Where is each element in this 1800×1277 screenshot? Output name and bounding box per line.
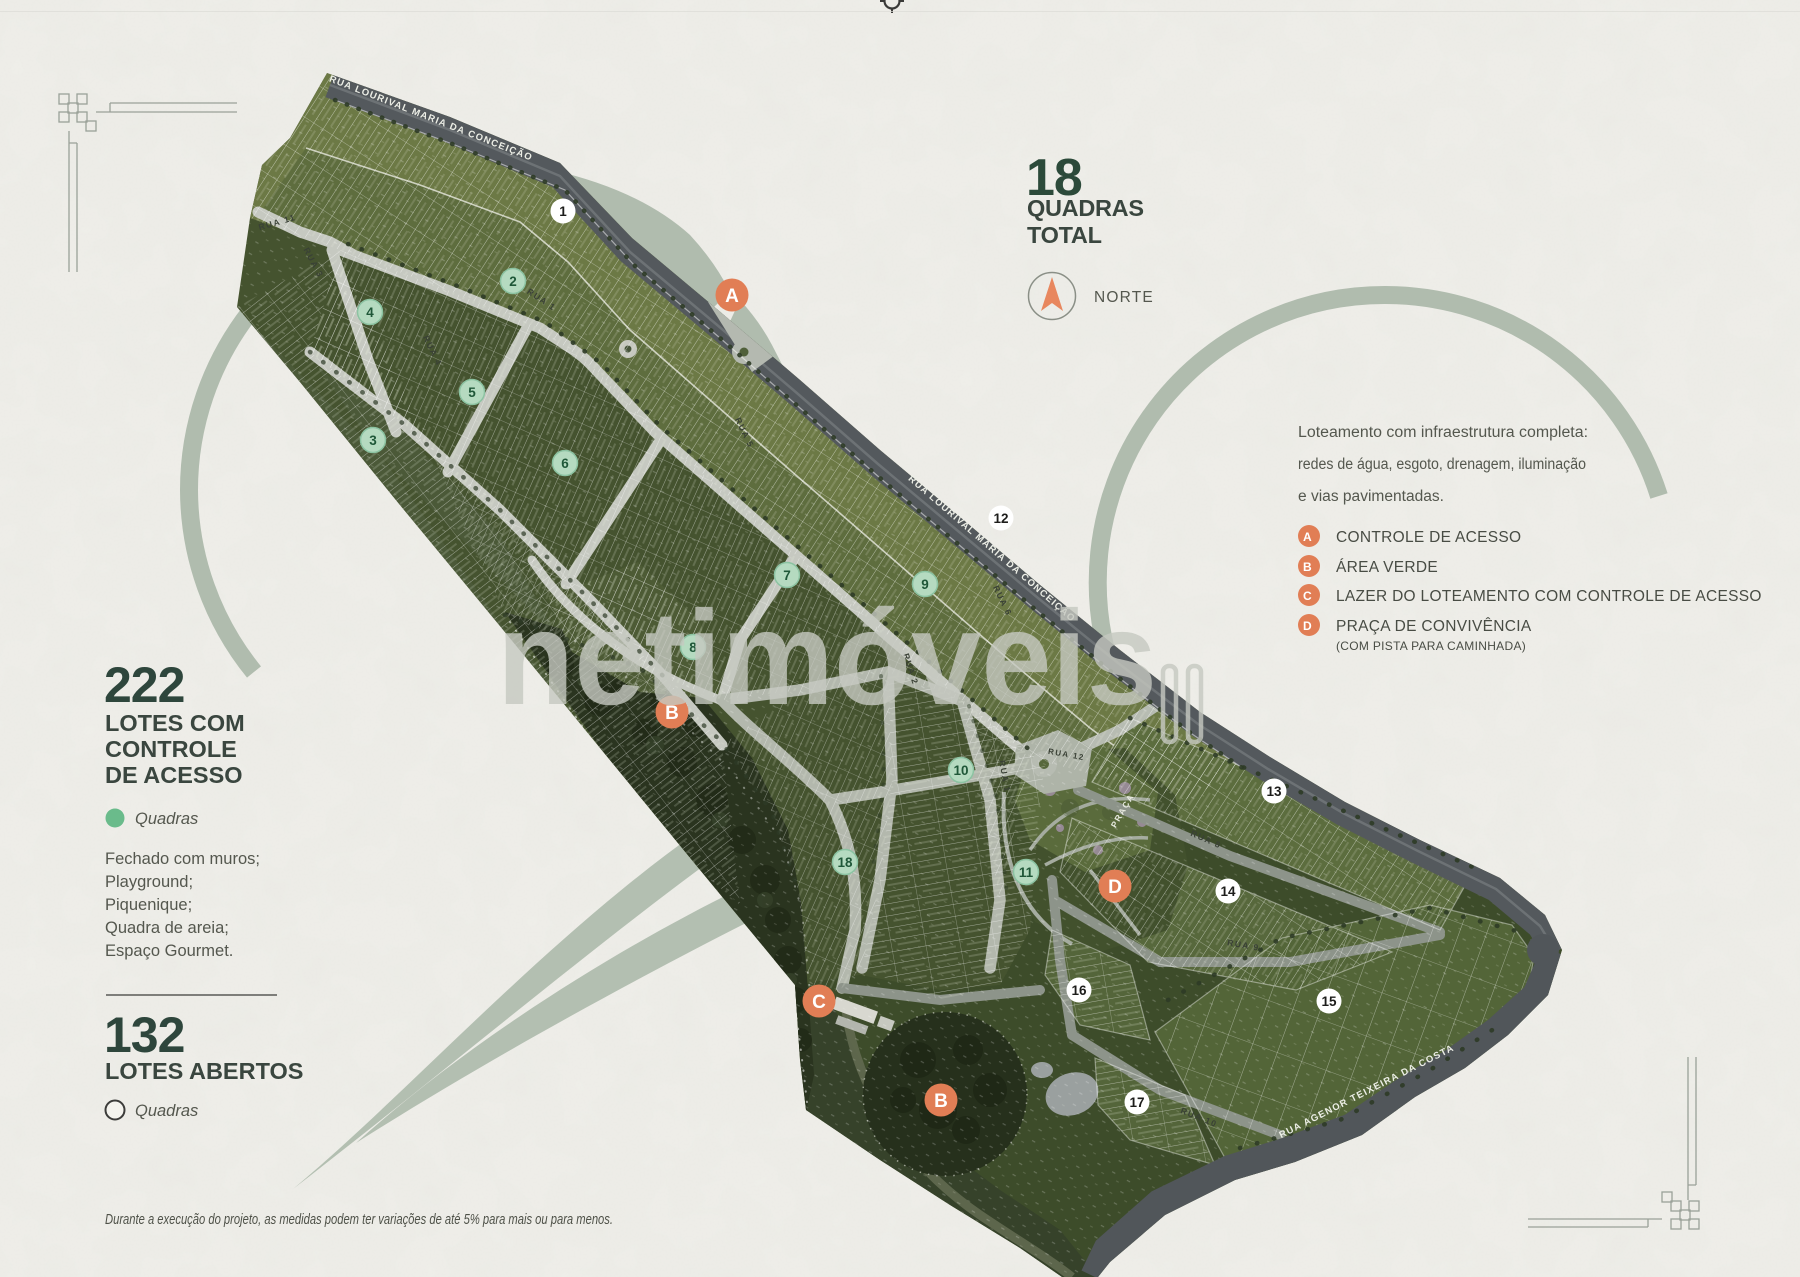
svg-text:D: D	[1108, 877, 1122, 898]
svg-text:6: 6	[561, 456, 569, 471]
svg-text:QUADRAS: QUADRAS	[1027, 195, 1144, 221]
svg-text:Quadras: Quadras	[135, 1102, 198, 1120]
svg-text:16: 16	[1071, 983, 1087, 998]
svg-text:Piquenique;: Piquenique;	[105, 896, 192, 914]
svg-text:4: 4	[366, 305, 374, 320]
svg-text:Quadras: Quadras	[135, 810, 198, 828]
svg-text:netimóveis: netimóveis	[497, 584, 1157, 733]
svg-text:C: C	[812, 992, 826, 1013]
svg-text:LAZER DO LOTEAMENTO COM CONTRO: LAZER DO LOTEAMENTO COM CONTROLE DE ACES…	[1336, 588, 1762, 605]
svg-text:11: 11	[1019, 865, 1034, 880]
svg-text:2: 2	[509, 274, 517, 289]
svg-text:e vias pavimentadas.: e vias pavimentadas.	[1298, 488, 1444, 505]
svg-text:LOTES COM: LOTES COM	[105, 710, 245, 736]
svg-text:Fechado com muros;: Fechado com muros;	[105, 850, 260, 868]
svg-text:Quadra de areia;: Quadra de areia;	[105, 919, 229, 937]
svg-text:PRAÇA DE CONVIVÊNCIA: PRAÇA DE CONVIVÊNCIA	[1336, 618, 1532, 635]
svg-text:Loteamento com infraestrutura: Loteamento com infraestrutura completa:	[1298, 424, 1588, 441]
svg-text:C: C	[1303, 589, 1312, 603]
svg-text:CONTROLE: CONTROLE	[105, 736, 237, 762]
svg-text:ÁREA VERDE: ÁREA VERDE	[1336, 559, 1438, 576]
svg-text:1: 1	[559, 204, 567, 219]
svg-text:D: D	[1303, 619, 1312, 633]
svg-text:15: 15	[1321, 994, 1337, 1009]
svg-text:A: A	[1303, 530, 1312, 544]
svg-text:B: B	[1303, 560, 1312, 574]
svg-text:3: 3	[369, 433, 377, 448]
svg-text:NORTE: NORTE	[1094, 289, 1154, 306]
svg-text:DE ACESSO: DE ACESSO	[105, 762, 243, 788]
svg-text:LOTES ABERTOS: LOTES ABERTOS	[105, 1058, 303, 1084]
svg-text:TOTAL: TOTAL	[1027, 222, 1102, 248]
svg-text:5: 5	[468, 385, 476, 400]
svg-text:18: 18	[837, 855, 853, 870]
svg-text:Espaço Gourmet.: Espaço Gourmet.	[105, 942, 233, 960]
svg-text:12: 12	[993, 511, 1008, 526]
svg-text:10: 10	[953, 763, 968, 778]
svg-text:Playground;: Playground;	[105, 873, 193, 891]
svg-text:13: 13	[1266, 784, 1282, 799]
svg-text:14: 14	[1220, 884, 1236, 899]
svg-text:Durante a execução do projeto,: Durante a execução do projeto, as medida…	[105, 1212, 613, 1228]
svg-text:17: 17	[1129, 1095, 1144, 1110]
svg-text:redes de água, esgoto, drenage: redes de água, esgoto, drenagem, ilumina…	[1298, 456, 1586, 473]
svg-text:A: A	[725, 286, 739, 307]
svg-text:CONTROLE DE ACESSO: CONTROLE DE ACESSO	[1336, 529, 1521, 546]
svg-text:7: 7	[783, 568, 791, 583]
svg-text:222: 222	[104, 657, 184, 713]
svg-text:132: 132	[104, 1007, 184, 1063]
svg-text:(COM PISTA PARA CAMINHADA): (COM PISTA PARA CAMINHADA)	[1336, 639, 1526, 653]
svg-text:B: B	[934, 1091, 948, 1112]
